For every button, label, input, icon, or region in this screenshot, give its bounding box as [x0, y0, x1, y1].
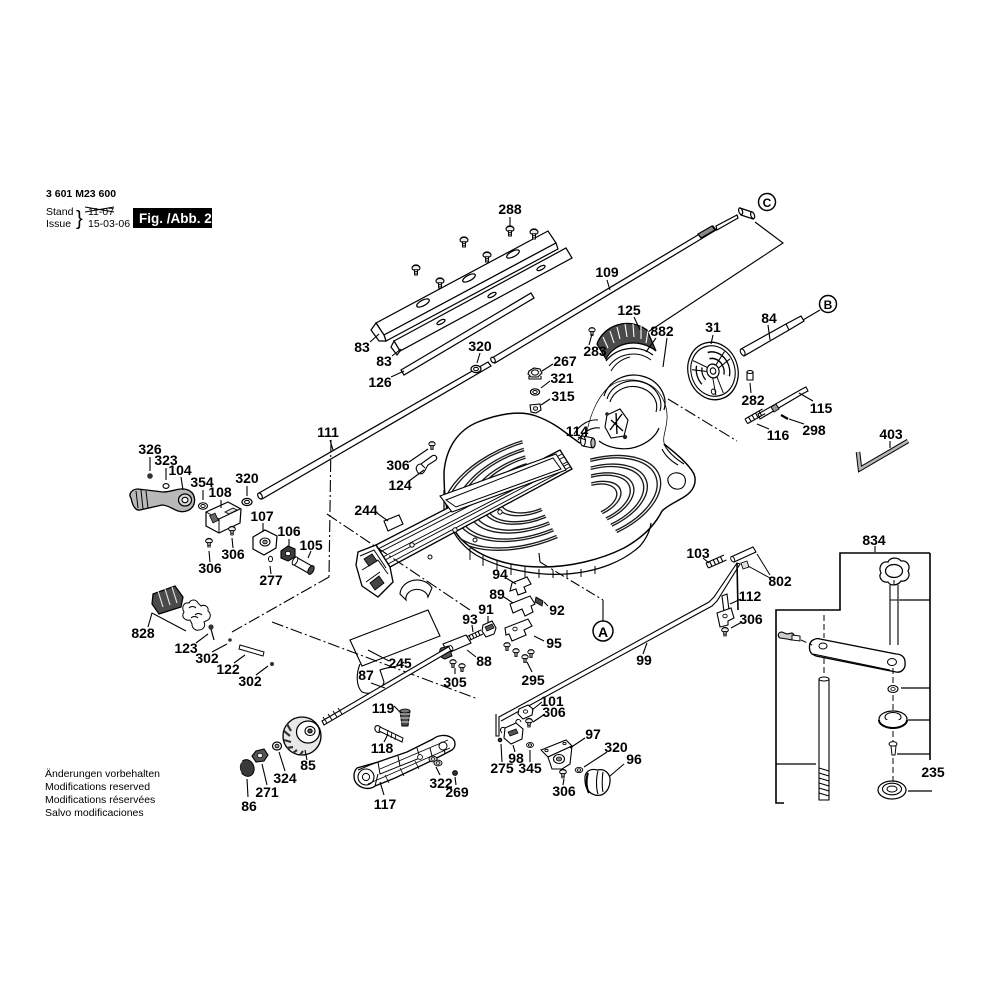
svg-text:15-03-06: 15-03-06 — [88, 218, 130, 230]
svg-text:277: 277 — [259, 572, 283, 588]
svg-text:97: 97 — [585, 726, 601, 742]
svg-text:124: 124 — [388, 477, 412, 493]
svg-text:99: 99 — [636, 652, 652, 668]
svg-text:83: 83 — [354, 339, 370, 355]
svg-text:89: 89 — [489, 586, 505, 602]
svg-text:103: 103 — [686, 545, 710, 561]
svg-text:306: 306 — [542, 704, 566, 720]
svg-text:Salvo modificaciones: Salvo modificaciones — [45, 807, 144, 819]
svg-text:320: 320 — [468, 338, 492, 354]
svg-text:306: 306 — [198, 560, 222, 576]
svg-text:111: 111 — [317, 424, 339, 440]
svg-text:104: 104 — [168, 462, 192, 478]
svg-text:105: 105 — [299, 537, 323, 553]
svg-text:306: 306 — [386, 457, 410, 473]
svg-text:802: 802 — [768, 573, 792, 589]
svg-text:Fig. /Abb. 2: Fig. /Abb. 2 — [139, 211, 212, 226]
svg-text:305: 305 — [443, 674, 467, 690]
svg-text:108: 108 — [208, 484, 232, 500]
svg-text:834: 834 — [862, 532, 886, 548]
svg-text:122: 122 — [216, 661, 240, 677]
svg-text:119: 119 — [372, 700, 395, 716]
svg-text:109: 109 — [595, 264, 619, 280]
svg-text:84: 84 — [761, 310, 777, 326]
svg-text:288: 288 — [498, 201, 522, 217]
svg-text:245: 245 — [388, 655, 412, 671]
svg-text:C: C — [763, 196, 772, 210]
svg-text:275: 275 — [490, 760, 514, 776]
svg-text:315: 315 — [551, 388, 575, 404]
svg-text:126: 126 — [368, 374, 392, 390]
svg-text:85: 85 — [300, 757, 316, 773]
svg-text:306: 306 — [739, 611, 763, 627]
svg-text:106: 106 — [277, 523, 301, 539]
svg-text:95: 95 — [546, 635, 562, 651]
svg-text:Stand: Stand — [46, 206, 74, 218]
svg-text:Modifications réservées: Modifications réservées — [45, 794, 155, 806]
svg-text:118: 118 — [371, 740, 394, 756]
svg-text:88: 88 — [476, 653, 492, 669]
svg-text:Änderungen vorbehalten: Änderungen vorbehalten — [45, 768, 160, 780]
svg-text:267: 267 — [553, 353, 577, 369]
svg-text:882: 882 — [650, 323, 674, 339]
svg-text:Modifications reserved: Modifications reserved — [45, 781, 150, 793]
svg-text:283: 283 — [583, 343, 607, 359]
svg-text:116: 116 — [767, 427, 790, 443]
svg-text:87: 87 — [358, 667, 374, 683]
svg-text:320: 320 — [604, 739, 628, 755]
svg-text:321: 321 — [550, 370, 574, 386]
svg-text:91: 91 — [478, 601, 494, 617]
svg-text:86: 86 — [241, 798, 257, 814]
svg-text:403: 403 — [879, 426, 903, 442]
svg-text:107: 107 — [250, 508, 274, 524]
svg-text:3 601 M23 600: 3 601 M23 600 — [46, 188, 116, 200]
svg-text:271: 271 — [255, 784, 279, 800]
svg-text:31: 31 — [705, 319, 721, 335]
svg-text:295: 295 — [521, 672, 545, 688]
svg-text:114: 114 — [566, 423, 589, 439]
svg-text:828: 828 — [131, 625, 155, 641]
svg-text:94: 94 — [492, 566, 508, 582]
svg-text:92: 92 — [549, 602, 565, 618]
svg-text:93: 93 — [462, 611, 478, 627]
svg-text:244: 244 — [354, 502, 378, 518]
svg-text:117: 117 — [374, 796, 397, 812]
svg-text:96: 96 — [626, 751, 642, 767]
svg-text:B: B — [824, 298, 833, 312]
svg-text:302: 302 — [238, 673, 262, 689]
svg-text:306: 306 — [221, 546, 245, 562]
svg-text:}: } — [76, 208, 83, 230]
svg-text:282: 282 — [741, 392, 765, 408]
svg-text:115: 115 — [810, 400, 833, 416]
svg-text:235: 235 — [921, 764, 945, 780]
svg-text:320: 320 — [235, 470, 259, 486]
svg-text:112: 112 — [739, 588, 762, 604]
svg-text:83: 83 — [376, 353, 392, 369]
svg-text:125: 125 — [617, 302, 641, 318]
svg-text:345: 345 — [518, 760, 542, 776]
svg-text:306: 306 — [552, 783, 576, 799]
svg-text:Issue: Issue — [46, 218, 71, 230]
svg-text:A: A — [598, 624, 608, 640]
svg-text:269: 269 — [445, 784, 469, 800]
svg-text:298: 298 — [802, 422, 826, 438]
